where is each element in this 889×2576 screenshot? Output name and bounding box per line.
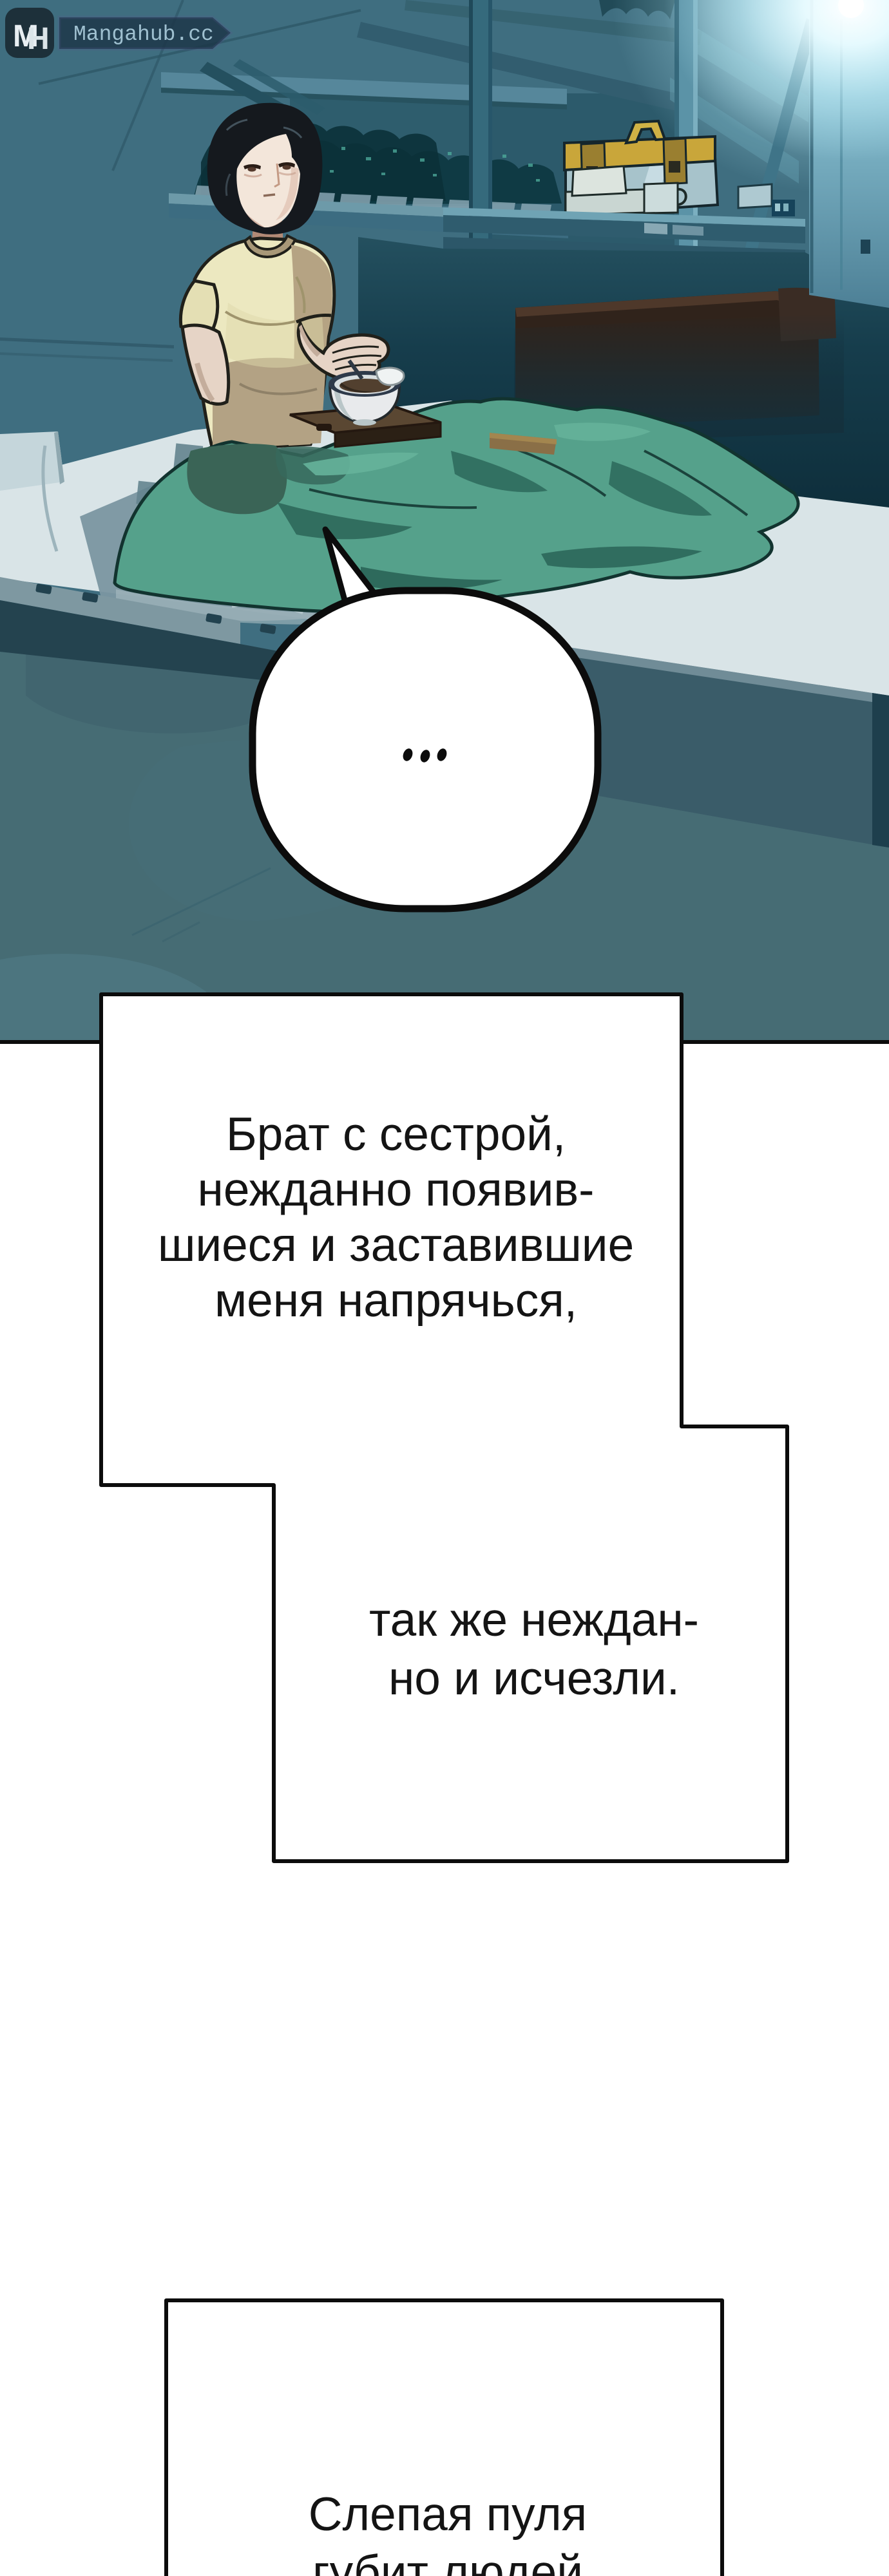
- svg-text:H: H: [27, 22, 50, 56]
- svg-text:Mangahub.cc: Mangahub.cc: [73, 23, 214, 46]
